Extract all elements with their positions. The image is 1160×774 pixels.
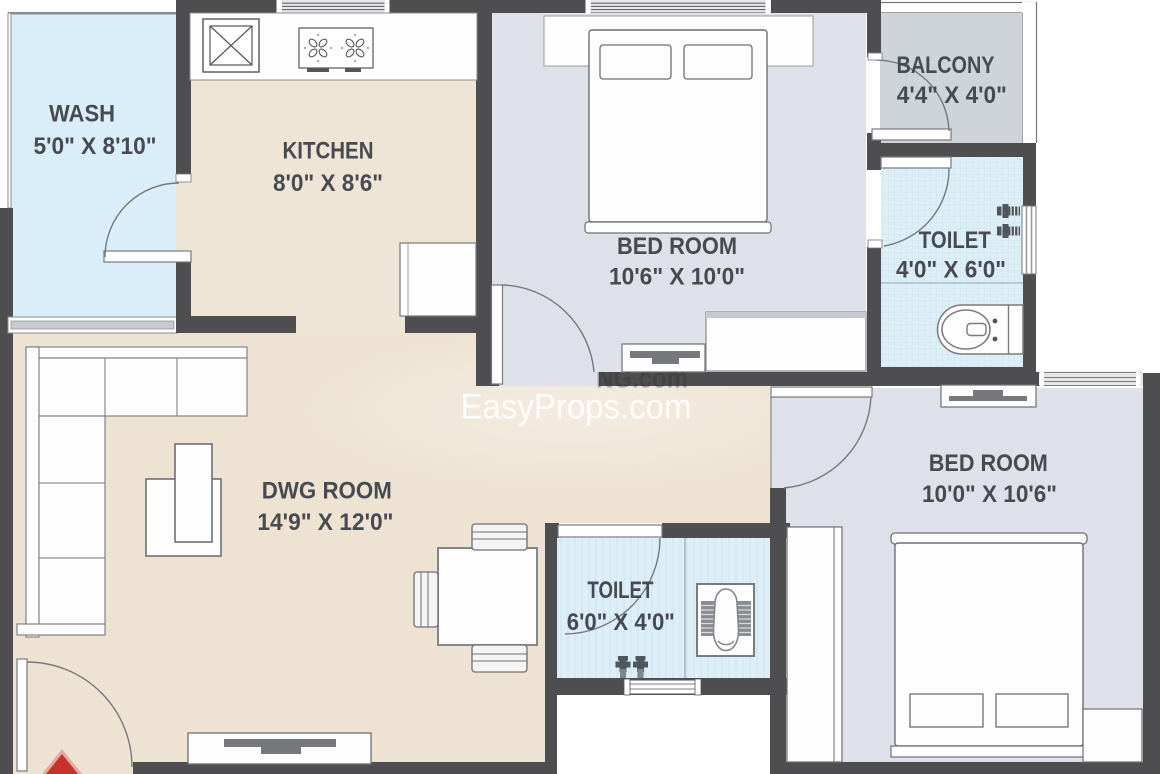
svg-text:WASH: WASH [49, 101, 115, 128]
svg-text:5'0" X 8'10": 5'0" X 8'10" [34, 133, 157, 160]
svg-text:6'0" X 4'0": 6'0" X 4'0" [567, 609, 675, 636]
svg-text:DWG ROOM: DWG ROOM [262, 478, 392, 505]
svg-text:10'0" X 10'6": 10'0" X 10'6" [922, 481, 1057, 508]
svg-text:4'0" X 6'0": 4'0" X 6'0" [896, 257, 1006, 284]
svg-text:BED ROOM: BED ROOM [617, 233, 737, 260]
svg-text:8'0" X 8'6": 8'0" X 8'6" [273, 170, 383, 197]
svg-text:10'6" X 10'0": 10'6" X 10'0" [609, 264, 745, 291]
svg-text:4'4" X 4'0": 4'4" X 4'0" [897, 82, 1007, 109]
svg-text:TOILET: TOILET [587, 577, 653, 604]
svg-text:TOILET: TOILET [919, 227, 991, 254]
svg-text:KITCHEN: KITCHEN [283, 138, 374, 165]
svg-text:BED ROOM: BED ROOM [929, 450, 1048, 477]
svg-text:EasyProps.com: EasyProps.com [461, 388, 692, 427]
svg-text:14'9" X 12'0": 14'9" X 12'0" [257, 509, 393, 536]
svg-text:BALCONY: BALCONY [897, 52, 995, 79]
